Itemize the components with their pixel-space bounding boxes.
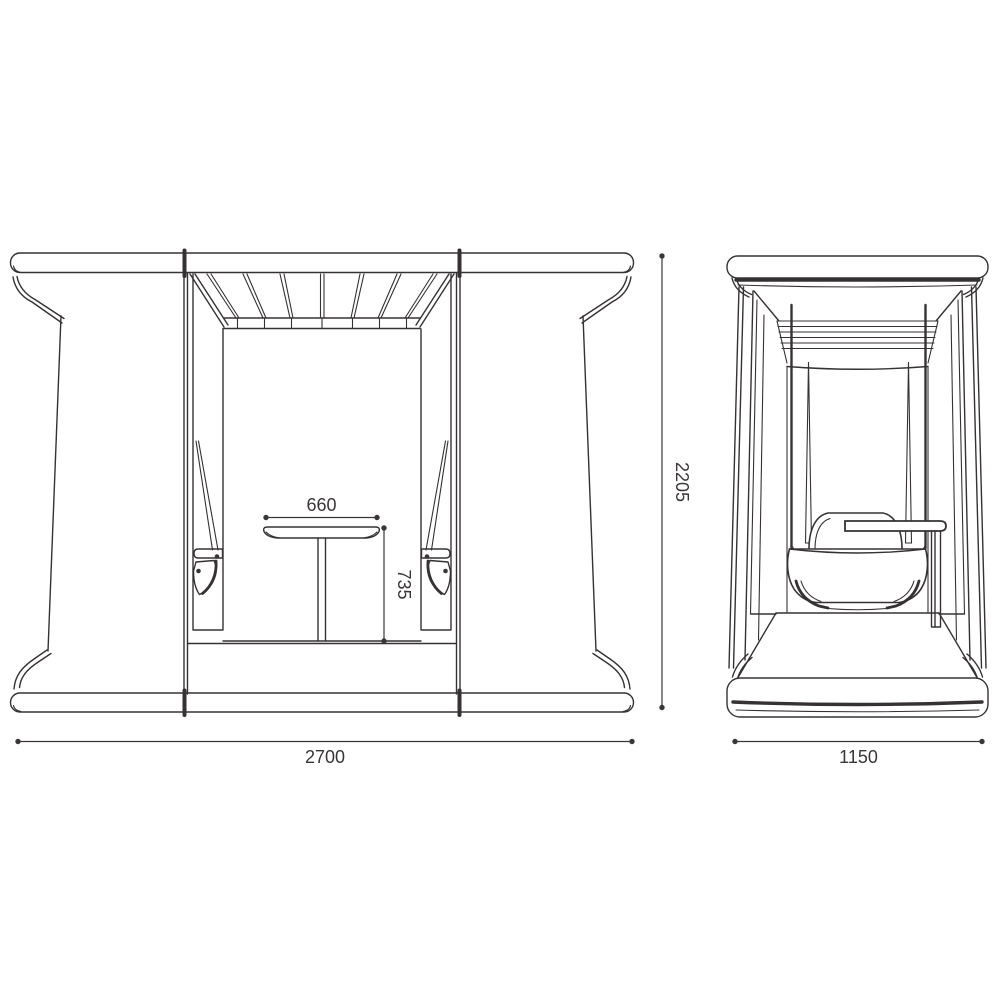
front-elevation-view: [11, 251, 634, 716]
side-ceiling-diagonals: [754, 291, 961, 321]
bracket-top-right: [580, 277, 631, 324]
dim-overall-width-label: 2700: [305, 747, 345, 767]
side-canopy-slab: [727, 256, 988, 278]
side-uprights: [729, 287, 986, 668]
side-base-corner-skirts: [733, 654, 983, 677]
dim-overall-width: 2700: [15, 739, 634, 767]
dim-endpoint-dot: [15, 739, 20, 744]
dim-table-width-label: 660: [306, 495, 336, 515]
dimension-annotations: 2700 2205 1150 660 735: [15, 253, 984, 767]
left-seat-pivot-dot: [215, 554, 220, 559]
side-hanging-rods: [792, 305, 926, 548]
front-base-cap-accents: [14, 706, 631, 712]
dim-endpoint-dot: [659, 253, 664, 258]
dim-table-height-label: 735: [394, 569, 414, 599]
dim-endpoint-dot: [381, 638, 386, 643]
side-ceiling-slats: [777, 321, 938, 349]
front-right-panel: [457, 273, 597, 694]
dim-endpoint-dot: [381, 525, 386, 530]
side-left-upright: [729, 287, 753, 668]
front-left-seat: [194, 549, 223, 595]
left-seat-edge: [203, 561, 217, 594]
dim-overall-height-label: 2205: [672, 462, 692, 502]
side-canopy: [727, 256, 988, 297]
ceiling-slat-ends: [238, 318, 407, 329]
bracket-bottom-right: [593, 650, 630, 689]
front-base: [11, 691, 634, 716]
front-canopy: [11, 251, 634, 277]
right-seat-edge: [428, 561, 442, 594]
ceiling-slats: [207, 274, 437, 318]
side-base-underline: [736, 710, 979, 712]
table-pedestal: [318, 538, 326, 641]
front-canopy-slab: [11, 253, 634, 273]
front-canopy-cap-accents: [14, 266, 631, 273]
side-table-top: [845, 521, 946, 531]
side-base: [727, 654, 988, 717]
right-seat-hinge-dot: [443, 569, 448, 574]
pod-technical-drawing: 2700 2205 1150 660 735: [0, 0, 1000, 1000]
dim-endpoint-dot: [263, 515, 268, 520]
side-ceiling: [754, 291, 961, 369]
front-table: [264, 527, 380, 641]
side-base-edge-band: [733, 702, 982, 705]
side-right-upright: [962, 287, 986, 668]
dim-overall-height: 2205: [659, 253, 692, 710]
dim-overall-depth-label: 1150: [839, 747, 878, 767]
dim-endpoint-dot: [979, 739, 984, 744]
front-interior: [188, 274, 457, 644]
front-left-panel: [48, 273, 188, 694]
bracket-top-left: [13, 277, 64, 324]
front-ceiling-louvers: [190, 274, 454, 329]
dim-table-height: 735: [381, 525, 414, 643]
front-base-slab: [11, 693, 634, 712]
dimension-drawing-canvas: 2700 2205 1150 660 735: [0, 0, 1000, 1000]
front-outer-panels: [48, 273, 596, 694]
side-canopy-underline: [738, 285, 977, 287]
table-top: [264, 527, 380, 538]
dim-table-width: 660: [263, 495, 379, 520]
dim-overall-depth: 1150: [732, 739, 984, 767]
bracket-bottom-left: [14, 650, 51, 689]
left-seat-hinge-dot: [196, 569, 201, 574]
side-slat-stack-sides: [777, 321, 938, 363]
side-elevation-view: [727, 256, 988, 717]
front-corner-brackets: [13, 277, 631, 690]
interior-floor-lines: [188, 641, 457, 644]
side-floor-back-edge: [751, 613, 965, 614]
right-seat-pivot-dot: [425, 554, 430, 559]
dim-endpoint-dot: [629, 739, 634, 744]
dim-endpoint-dot: [374, 515, 379, 520]
dim-endpoint-dot: [732, 739, 737, 744]
dim-endpoint-dot: [659, 705, 664, 710]
front-right-seat: [422, 549, 451, 595]
